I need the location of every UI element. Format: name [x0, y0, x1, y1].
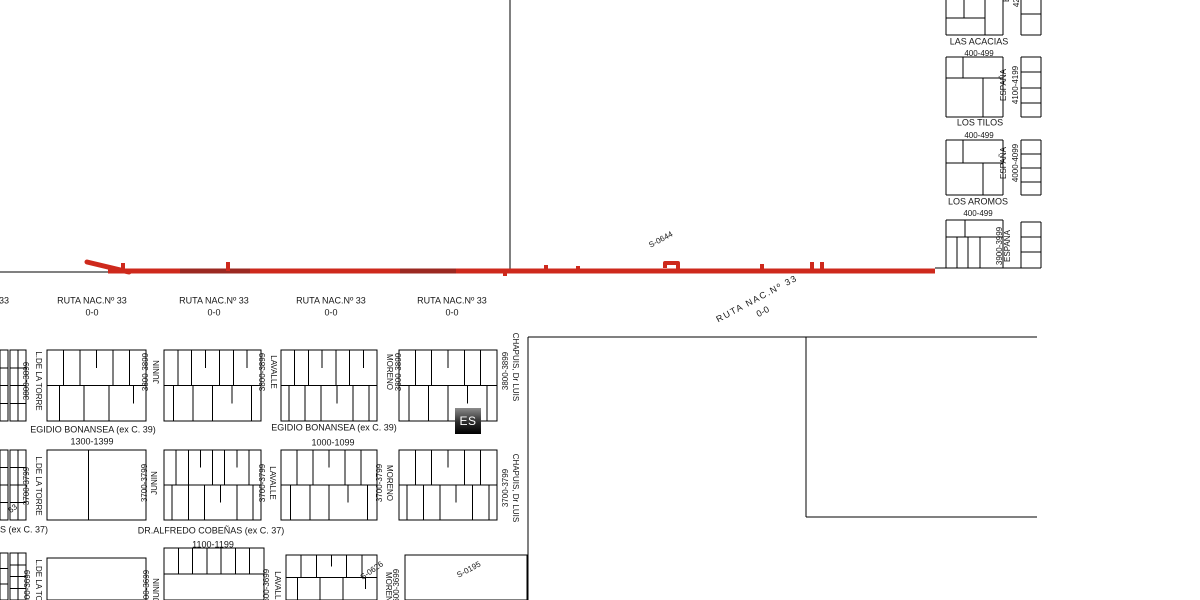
- address-range-label: 1300-1399: [70, 438, 113, 447]
- route-km-label: 0-0: [324, 309, 337, 318]
- street-name-label: MORENO: [385, 465, 393, 501]
- address-range-label: 400-499: [964, 132, 993, 140]
- street-name-label: LOS AROMOS: [948, 198, 1008, 207]
- address-range-label: 3800-3899: [259, 353, 267, 391]
- address-range-label-partial: 4200-4299: [1013, 0, 1021, 7]
- street-name-label: JUNIN: [151, 471, 159, 495]
- street-name-label: MORENO: [385, 354, 393, 390]
- street-name-label: JUNIN: [153, 578, 161, 600]
- street-name-label: LAVALLE: [273, 571, 281, 600]
- address-range-label: 3700-3799: [141, 464, 149, 502]
- address-range-label: 400-499: [963, 210, 992, 218]
- route-label: RUTA NAC.Nº 33: [179, 297, 249, 306]
- address-range-label: 3700-3799: [376, 464, 384, 502]
- street-name-label: CHAPUIS, Dr LUIS: [511, 454, 519, 522]
- street-name-label: LAS ACACIAS: [950, 38, 1009, 47]
- street-name-label: LAVALLE: [268, 466, 276, 500]
- address-range-label: 3600-3699: [393, 569, 401, 600]
- street-name-label: L.DE LA TORRE: [34, 456, 42, 515]
- route-km-label: 0-0: [445, 309, 458, 318]
- section-code-label: S-0626: [359, 560, 385, 581]
- street-name-label: L.DE LA TORRE: [34, 351, 42, 410]
- street-name-label: JUNIN: [153, 360, 161, 384]
- address-range-label: 4000-4099: [1012, 144, 1020, 182]
- street-name-label: CHAPUIS, Dr LUIS: [511, 333, 519, 401]
- section-code-label-partial: 63: [7, 503, 19, 515]
- route-label-partial: 33: [0, 297, 9, 306]
- street-name-label: EGIDIO BONANSEA (ex C. 39): [271, 424, 397, 433]
- address-range-label: 3700-3799: [23, 467, 31, 505]
- street-name-label: ESPAÑA: [1004, 230, 1012, 262]
- address-range-label: 1100-1199: [192, 541, 234, 550]
- route-km-label: 0-0: [207, 309, 220, 318]
- gas-station-marker: ES: [455, 408, 481, 434]
- address-range-label: 3800-3899: [502, 352, 510, 390]
- address-range-label: 3600-3699: [263, 569, 271, 600]
- address-range-label: 400-499: [964, 50, 993, 58]
- map-canvas[interactable]: 33RUTA NAC.Nº 330-0RUTA NAC.Nº 330-0RUTA…: [0, 0, 1200, 600]
- labels-layer: 33RUTA NAC.Nº 330-0RUTA NAC.Nº 330-0RUTA…: [0, 0, 1200, 600]
- street-name-label: MORENO: [384, 572, 392, 600]
- street-name-label: LOS TILOS: [957, 119, 1003, 128]
- street-name-label: LAVALLE: [269, 355, 277, 389]
- address-range-label: 3900-3999: [996, 227, 1004, 265]
- route-label: RUTA NAC.Nº 33: [296, 297, 366, 306]
- section-code-label: S-0644: [648, 230, 675, 249]
- street-name-label: ESPAÑA: [1000, 69, 1008, 101]
- route-km-label: 0-0: [755, 305, 771, 319]
- address-range-label: 3800-3899: [142, 353, 150, 391]
- address-range-label: 3800-3899: [395, 353, 403, 391]
- address-range-label: 3800-3899: [23, 362, 31, 400]
- route-label: RUTA NAC.Nº 33: [417, 297, 487, 306]
- street-name-label-partial: S (ex C. 37): [0, 526, 48, 535]
- address-range-label: 1000-1099: [311, 439, 354, 448]
- section-code-label: S-0195: [456, 560, 483, 579]
- address-range-label: 3600-3699: [24, 570, 32, 600]
- address-range-label: 3700-3799: [502, 469, 510, 507]
- route-km-label: 0-0: [85, 309, 98, 318]
- address-range-label: 3600-3699: [143, 570, 151, 600]
- route-label: RUTA NAC.Nº 33: [715, 274, 799, 324]
- street-name-label: ESPAÑA: [1000, 147, 1008, 179]
- route-label: RUTA NAC.Nº 33: [57, 297, 127, 306]
- street-name-label: L.DE LA TORRE: [34, 559, 42, 600]
- address-range-label: 3700-3799: [259, 464, 267, 502]
- street-name-label: EGIDIO BONANSEA (ex C. 39): [30, 426, 156, 435]
- street-name-label-partial: ESPAÑA: [1003, 0, 1011, 2]
- street-name-label: DR.ALFREDO COBEÑAS (ex C. 37): [138, 527, 285, 536]
- address-range-label: 4100-4199: [1012, 66, 1020, 104]
